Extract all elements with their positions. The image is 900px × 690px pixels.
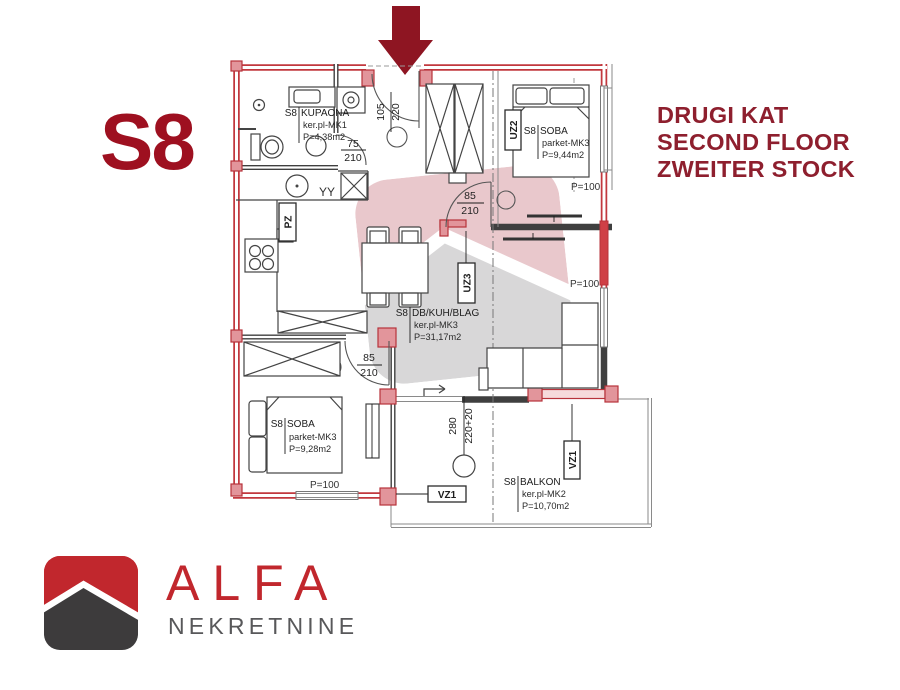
parapet-label: P=100 bbox=[570, 279, 600, 290]
window-living-east bbox=[601, 288, 608, 347]
floorplan-drawing: S8 KUPAONA ker.pl-MK1 P=4,38m2 75 210 10… bbox=[228, 58, 660, 536]
tag-vz1-right: VZ1 bbox=[564, 404, 580, 479]
room-code: S8 bbox=[271, 419, 284, 430]
room-code: S8 bbox=[504, 477, 517, 488]
wardrobe-icon bbox=[455, 84, 483, 173]
svg-text:75: 75 bbox=[347, 138, 359, 150]
svg-text:210: 210 bbox=[344, 152, 362, 164]
room-name: KUPAONA bbox=[301, 108, 349, 119]
balcony: 280 220+20 VZ1 VZ1 S8 BALKON ker.pl-MK2 bbox=[396, 396, 580, 512]
parapet-label: P=100 bbox=[310, 480, 340, 491]
svg-text:PZ: PZ bbox=[284, 216, 295, 229]
bathroom-label: S8 KUPAONA ker.pl-MK1 P=4,38m2 bbox=[285, 107, 350, 143]
tv-icon bbox=[366, 404, 379, 458]
room-area: P=9,44m2 bbox=[542, 150, 584, 160]
logo-mark bbox=[44, 556, 138, 650]
wardrobe-icon bbox=[278, 311, 367, 333]
bedroom-top: UZ2 S8 SOBA parket-MK3 P=9,44m2 P=100 bbox=[505, 85, 601, 193]
svg-text:220+20: 220+20 bbox=[463, 408, 475, 443]
svg-text:VZ1: VZ1 bbox=[438, 490, 457, 501]
room-finish: parket-MK3 bbox=[542, 138, 590, 148]
room-name: SOBA bbox=[287, 419, 315, 430]
room-code: S8 bbox=[285, 108, 298, 119]
balcony-label: S8 BALKON ker.pl-MK2 P=10,70m2 bbox=[504, 476, 569, 512]
svg-text:UZ3: UZ3 bbox=[463, 273, 474, 292]
room-finish: ker.pl-MK1 bbox=[303, 120, 347, 130]
room-name: DB/KUH/BLAG bbox=[412, 308, 479, 319]
cooktop-icon bbox=[245, 239, 278, 272]
stove-icon bbox=[341, 173, 367, 199]
svg-text:210: 210 bbox=[360, 367, 378, 379]
tag-vz1-left: VZ1 bbox=[396, 486, 466, 502]
toilet-icon bbox=[251, 134, 283, 160]
floor-heading-de: ZWEITER STOCK bbox=[657, 156, 855, 183]
bathroom: S8 KUPAONA ker.pl-MK1 P=4,38m2 75 210 bbox=[238, 87, 366, 164]
room-area: P=4,38m2 bbox=[303, 132, 345, 142]
balcony-dim: 280 220+20 bbox=[447, 396, 475, 477]
svg-text:220: 220 bbox=[390, 103, 402, 121]
svg-text:VZ1: VZ1 bbox=[568, 450, 579, 469]
window-bedroom-bottom-south bbox=[296, 492, 358, 500]
tag-pz: PZ bbox=[279, 203, 296, 241]
wardrobe-icon bbox=[244, 342, 340, 376]
glasses-icon: YY bbox=[319, 185, 335, 199]
floorplan-page: S8 DRUGI KAT SECOND FLOOR ZWEITER STOCK bbox=[0, 0, 900, 690]
svg-text:85: 85 bbox=[464, 190, 476, 202]
floor-heading-en: SECOND FLOOR bbox=[657, 129, 855, 156]
unit-label: S8 bbox=[100, 102, 194, 182]
room-code: S8 bbox=[396, 308, 409, 319]
wardrobe-icon bbox=[426, 84, 454, 173]
kitchen: YY PZ bbox=[236, 171, 368, 333]
exit-arrow-icon bbox=[424, 385, 445, 396]
svg-text:210: 210 bbox=[461, 205, 479, 217]
room-area: P=10,70m2 bbox=[522, 501, 569, 511]
room-area: P=9,28m2 bbox=[289, 444, 331, 454]
room-name: SOBA bbox=[540, 126, 568, 137]
room-finish: parket-MK3 bbox=[289, 432, 337, 442]
logo-brand-text: ALFA bbox=[166, 558, 340, 608]
tag-uz3: UZ3 bbox=[458, 231, 475, 303]
window-bedroom-top-east bbox=[601, 86, 608, 172]
svg-text:UZ2: UZ2 bbox=[509, 120, 520, 139]
balcony-glass-panel bbox=[542, 390, 605, 399]
wall-highlight-east bbox=[600, 221, 608, 285]
room-name: BALKON bbox=[520, 477, 561, 488]
room-finish: ker.pl-MK3 bbox=[414, 320, 458, 330]
tag-uz2: UZ2 bbox=[505, 110, 521, 150]
table-icon bbox=[362, 243, 428, 293]
room-finish: ker.pl-MK2 bbox=[522, 489, 566, 499]
arrow-stem bbox=[392, 6, 420, 42]
logo-subtitle-text: NEKRETNINE bbox=[168, 615, 358, 638]
bedroom-bottom: 85 210 S8 SOBA parket-MK3 P=9,28m2 P=100 bbox=[244, 342, 382, 491]
parapet-label: P=100 bbox=[571, 182, 601, 193]
svg-text:280: 280 bbox=[447, 417, 459, 435]
floor-heading-hr: DRUGI KAT bbox=[657, 102, 855, 129]
room-area: P=31,17m2 bbox=[414, 332, 461, 342]
floor-heading: DRUGI KAT SECOND FLOOR ZWEITER STOCK bbox=[657, 102, 855, 183]
svg-text:85: 85 bbox=[363, 352, 375, 364]
room-code: S8 bbox=[524, 126, 537, 137]
svg-text:105: 105 bbox=[375, 103, 387, 121]
